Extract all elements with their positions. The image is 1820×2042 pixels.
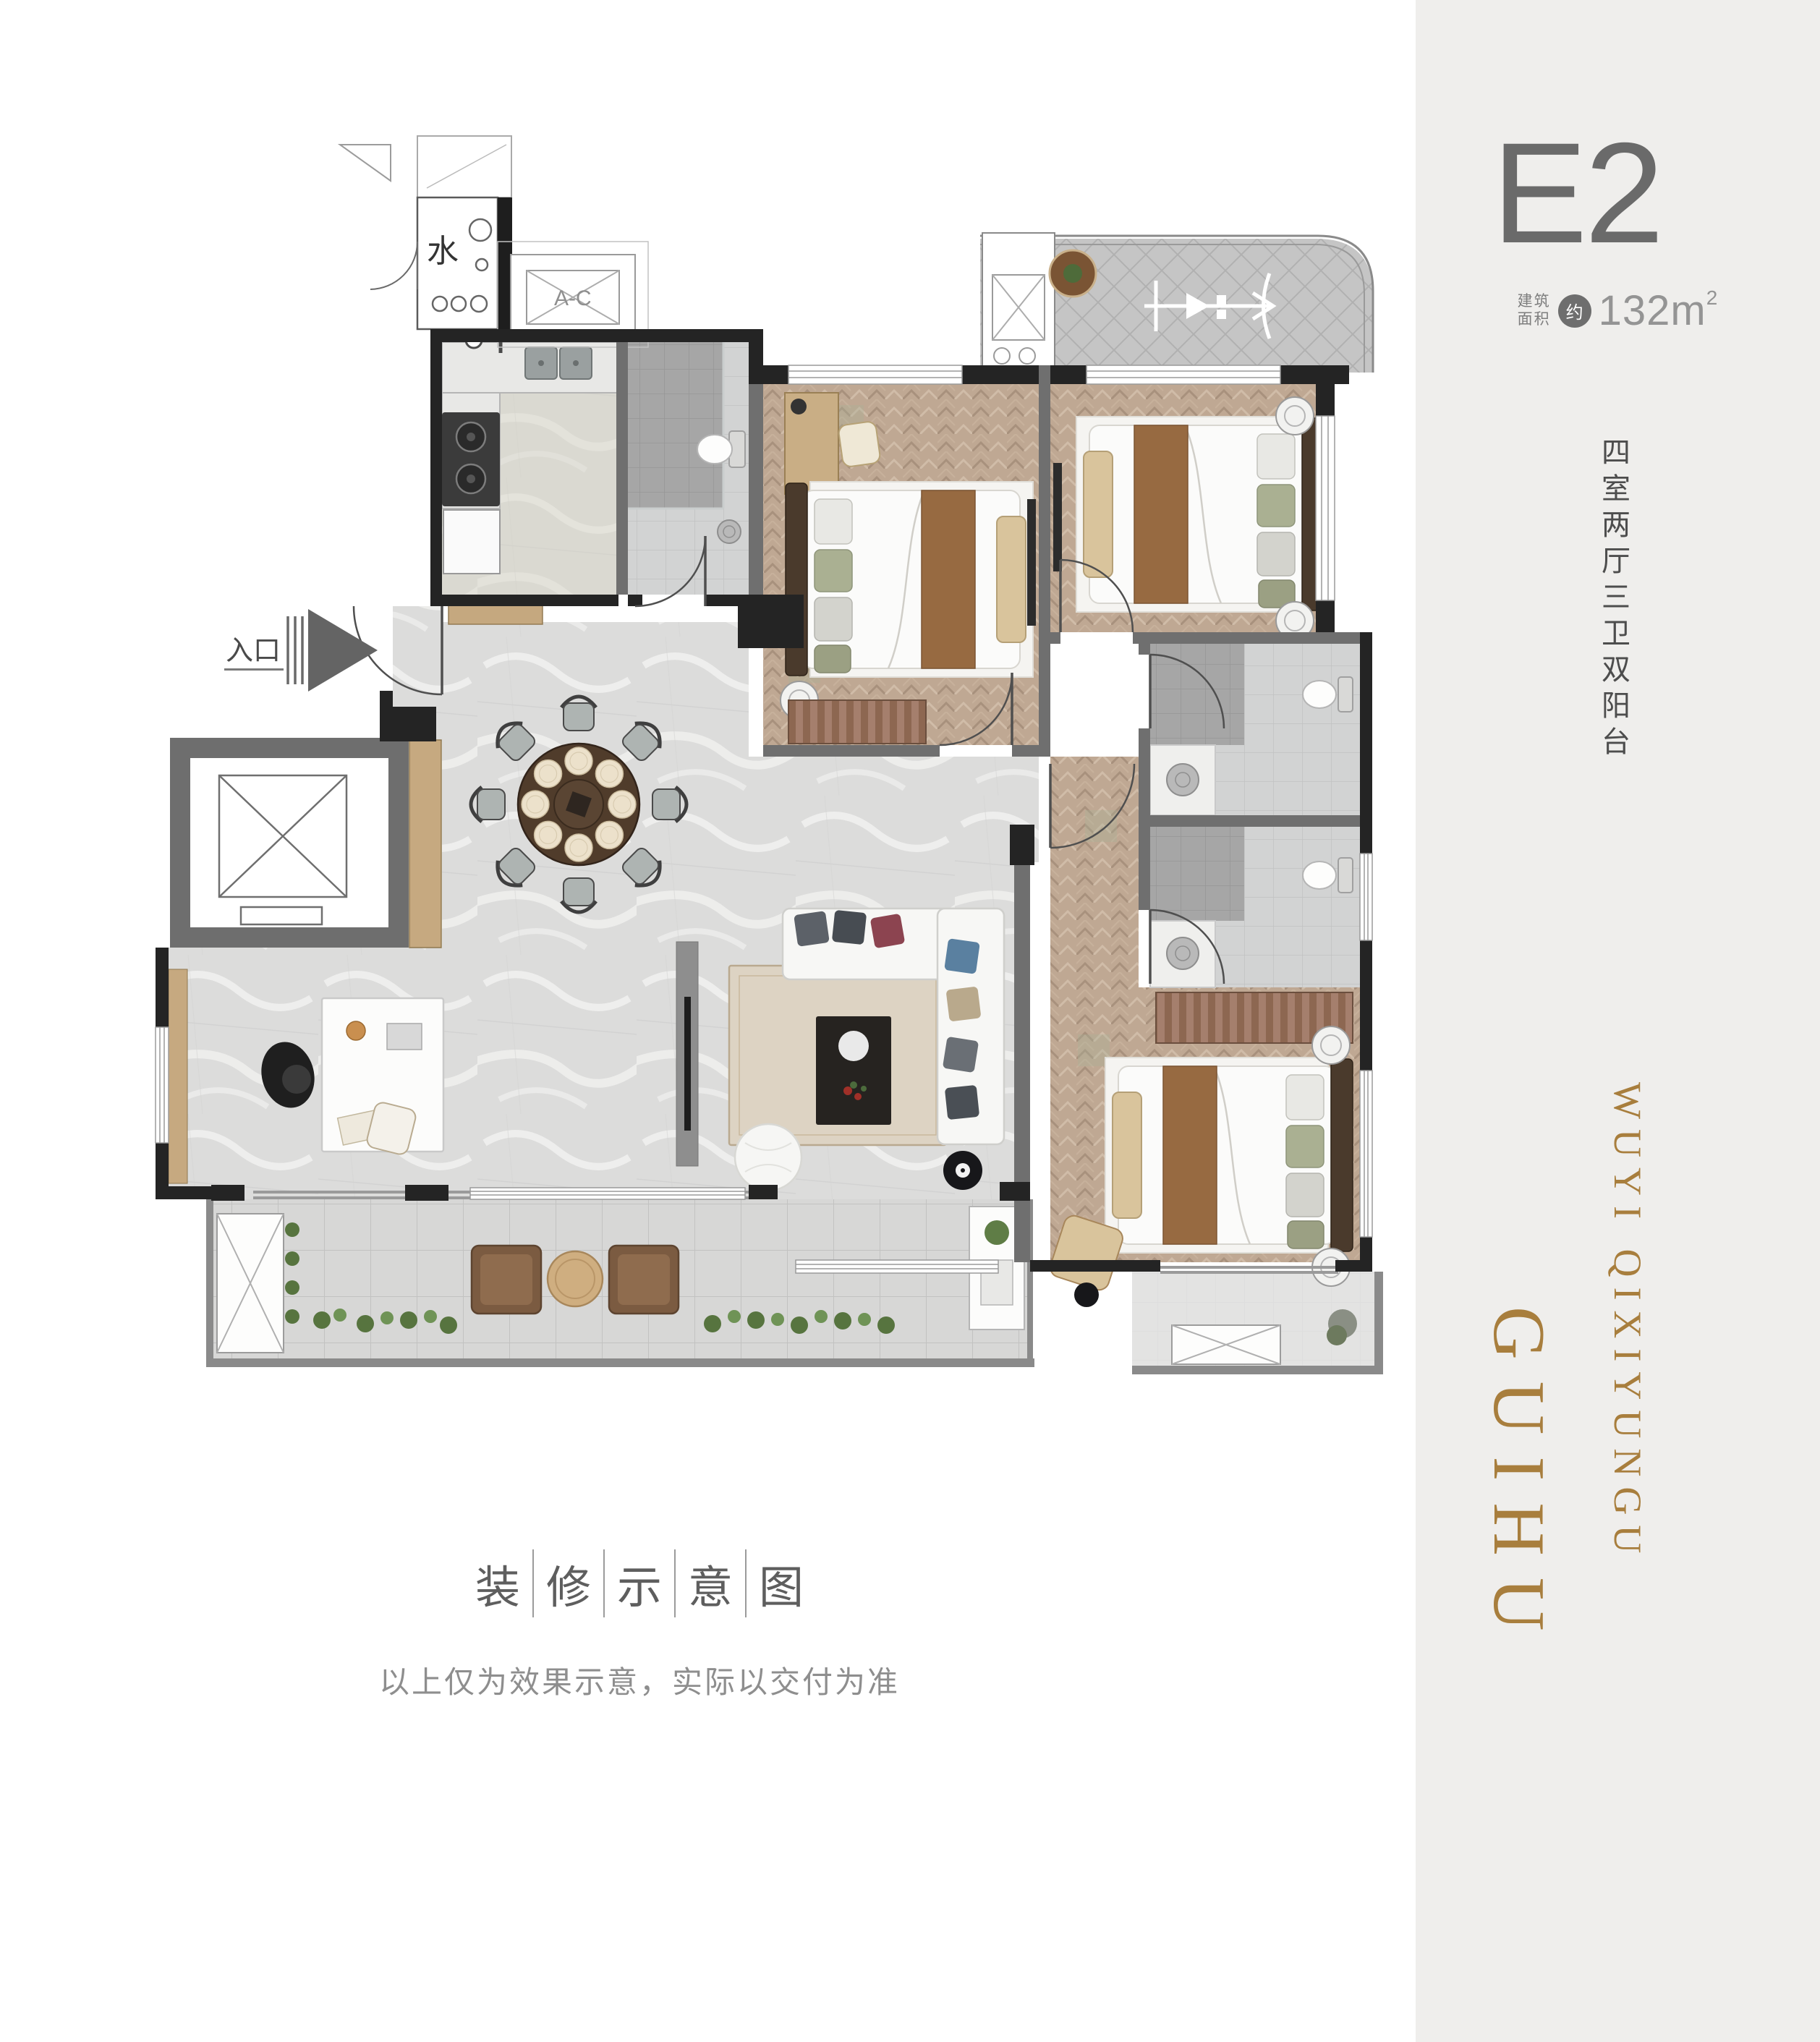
caption-char: 修 [546,1551,591,1616]
plan-code: E2 [1416,122,1820,265]
water-label: 水 [427,234,459,269]
bedroom-b [1053,397,1324,639]
caption-divider [745,1549,747,1617]
entrance-label-underline [224,668,284,671]
caption-char: 装 [475,1551,520,1616]
caption-divider [532,1549,534,1617]
area-label-line2: 面积 [1518,311,1551,328]
caption-block: 装 修 示 意 图 以上仅为效果示意，实际以交付为准 [278,1549,1001,1702]
ac-label: A-C [554,286,592,310]
area-row: 建筑 面积 约 132m2 [1416,286,1820,335]
elevator [170,738,441,948]
layout-description: 四室两厅三卫双阳台 [1592,437,1634,762]
brand-name-large: GUIHU [1476,1306,1561,1653]
caption-char: 意 [688,1551,733,1616]
dining-area [471,697,686,912]
poster-canvas: 水 A-C [0,0,1820,2042]
caption-char: 示 [617,1551,662,1616]
caption-char: 图 [759,1551,804,1616]
caption-disclaimer: 以上仅为效果示意，实际以交付为准 [278,1658,1001,1702]
entrance-label: 入口 [226,636,281,666]
caption-divider [674,1549,676,1617]
area-label-line1: 建筑 [1518,293,1551,310]
sidebar: E2 建筑 面积 约 132m2 四室两厅三卫双阳台 WUYI QIXIYUNG… [1416,0,1820,2042]
water-meter-box: 水 [340,136,512,329]
area-label: 建筑 面积 [1518,293,1551,328]
area-exponent: 2 [1706,286,1719,309]
caption-divider [603,1549,605,1617]
area-approx-badge: 约 [1558,294,1591,328]
caption-title: 装 修 示 意 图 [278,1549,1001,1617]
entrance-arrow [288,609,378,692]
area-value: 132m2 [1599,286,1719,335]
brand-name-small: WUYI QIXIYUNGU [1605,1082,1650,1563]
